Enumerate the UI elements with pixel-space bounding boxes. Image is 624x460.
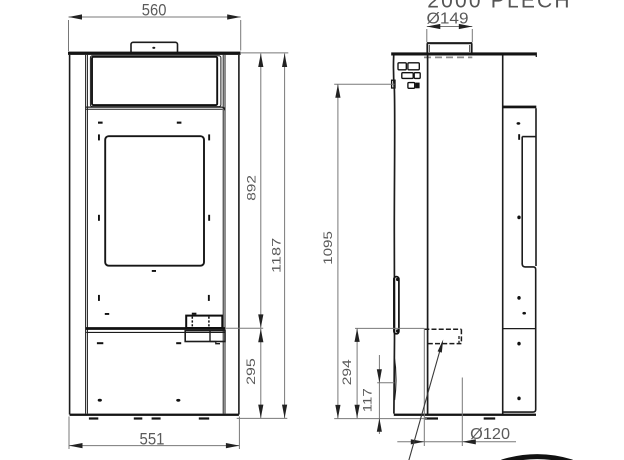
svg-text:117: 117 [361,388,375,412]
svg-text:560: 560 [142,2,167,20]
svg-text:1187: 1187 [269,237,283,273]
svg-text:1095: 1095 [321,231,335,265]
svg-text:294: 294 [340,359,354,385]
svg-text:295: 295 [244,358,258,385]
svg-text:892: 892 [244,175,258,201]
svg-text:Ø120: Ø120 [470,426,510,443]
svg-text:551: 551 [140,430,165,448]
